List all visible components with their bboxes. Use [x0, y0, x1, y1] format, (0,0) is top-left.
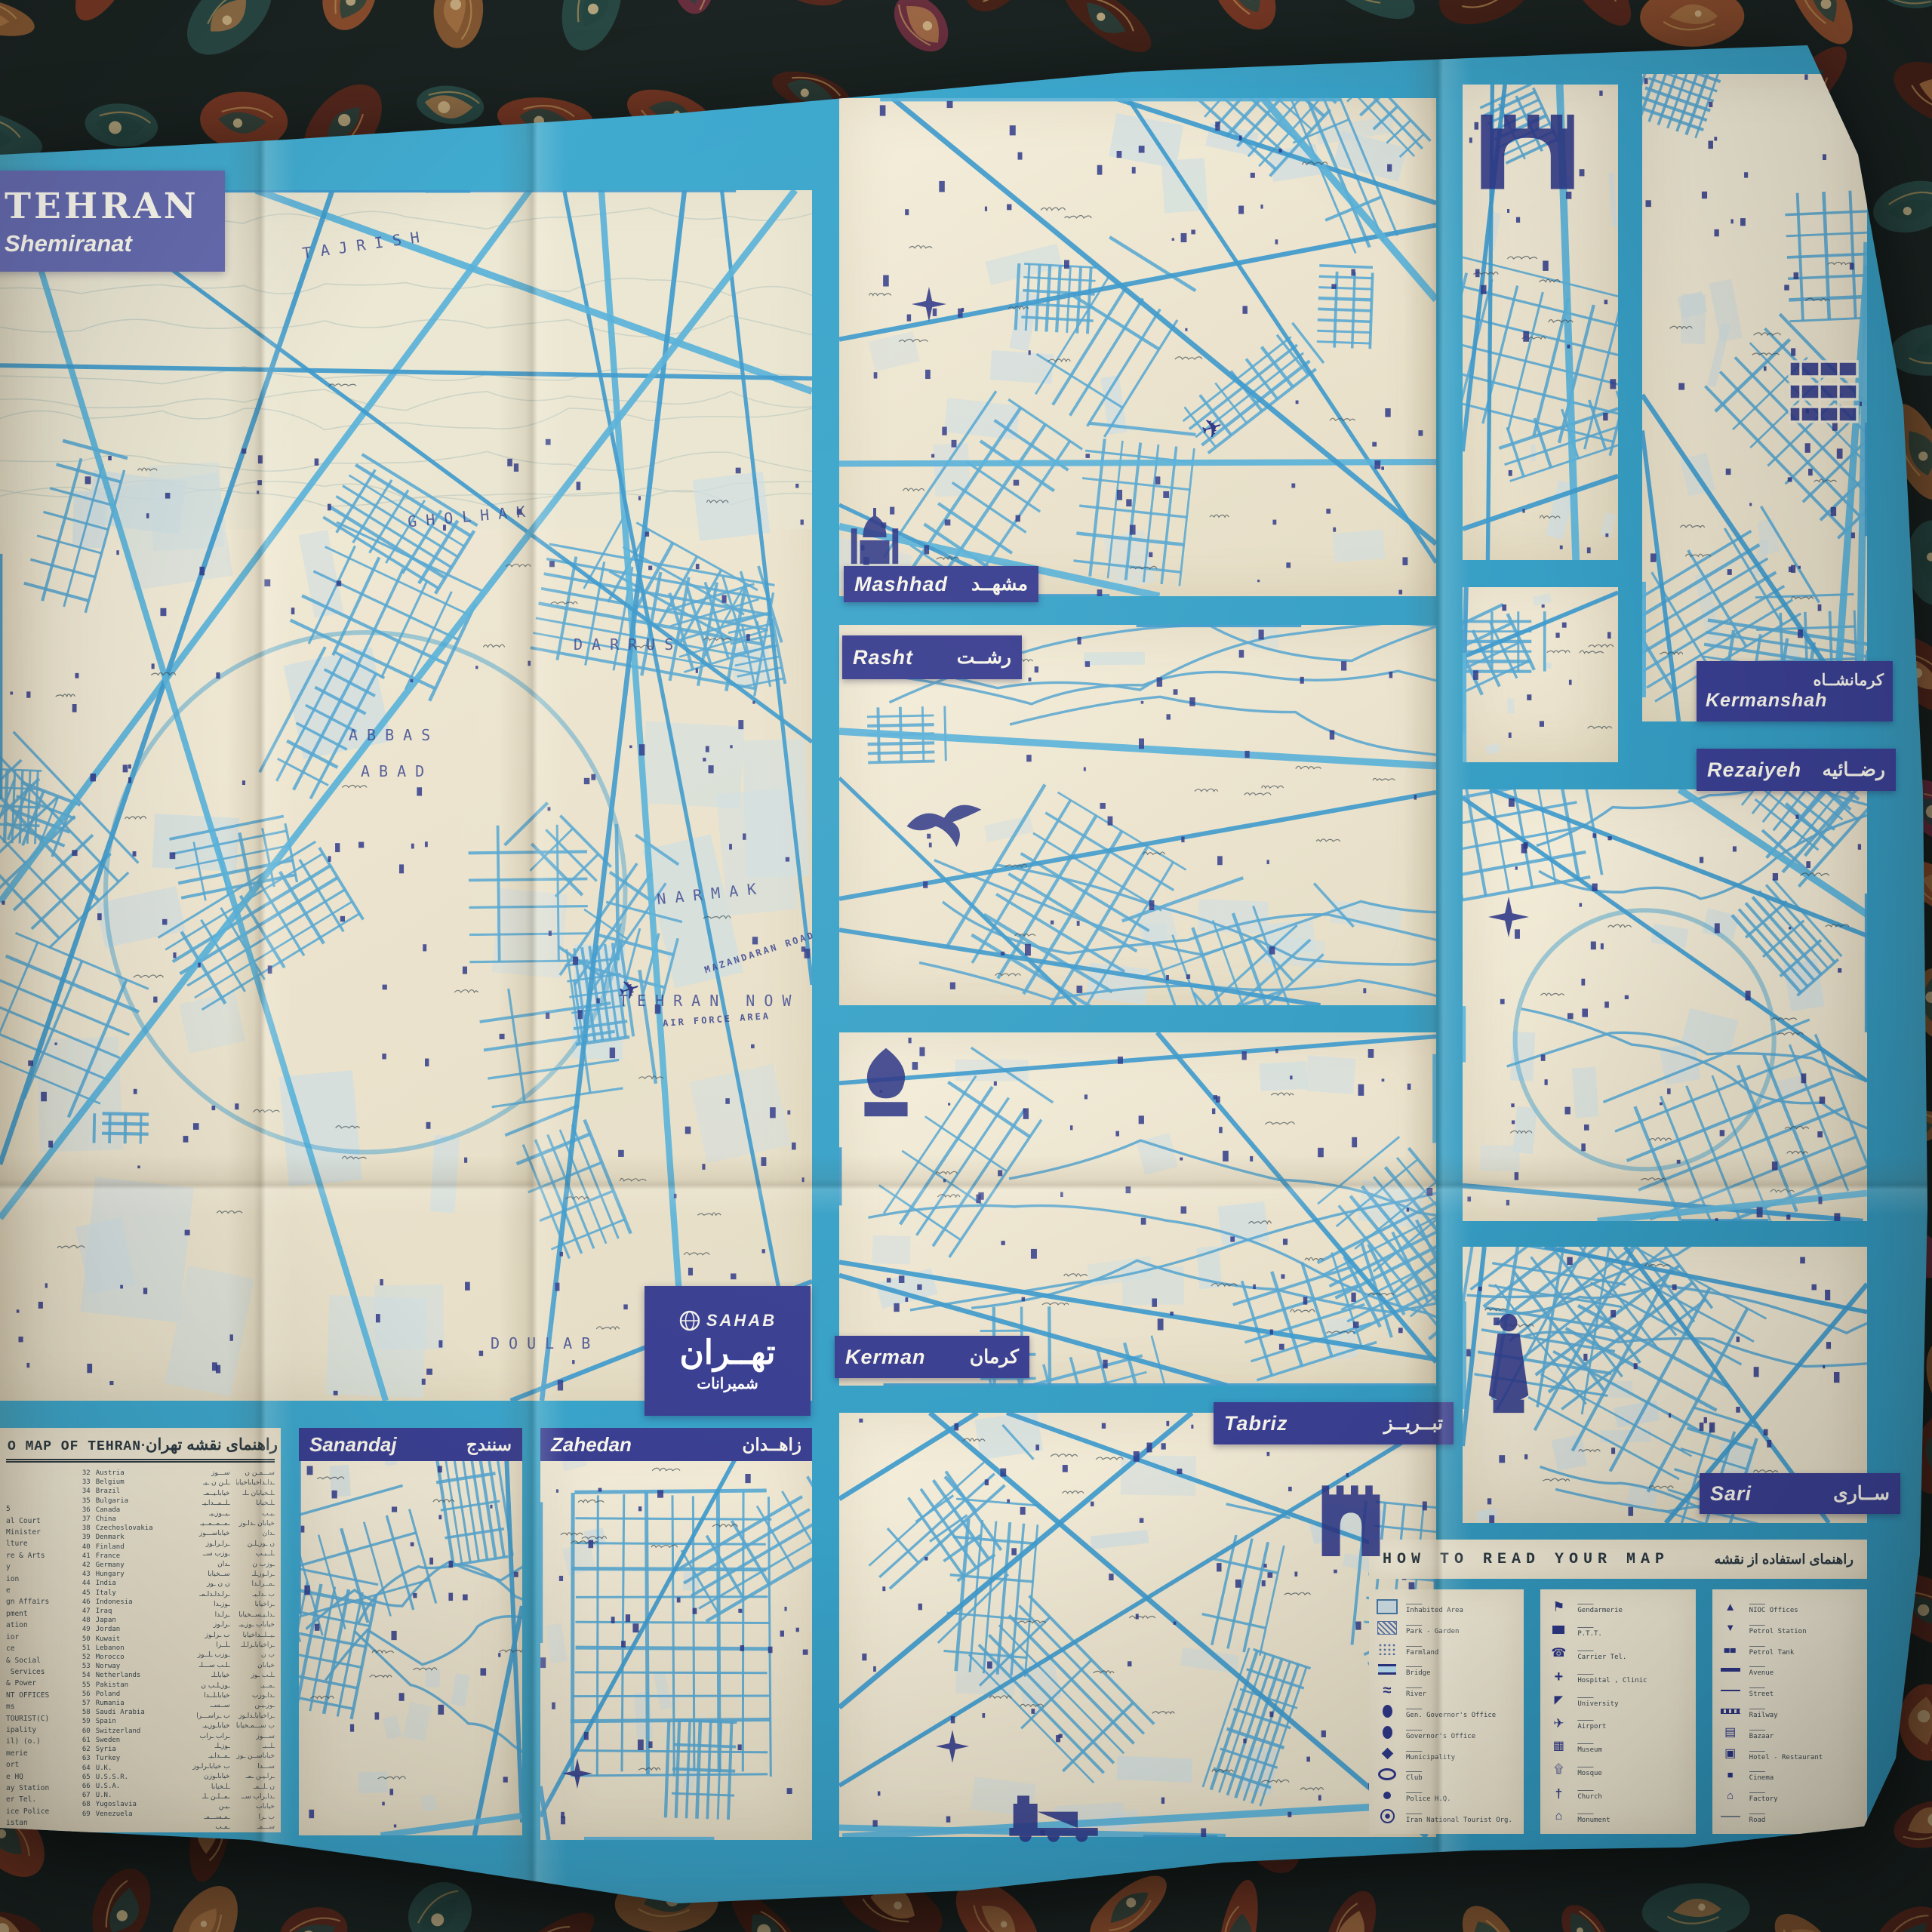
compass-rose-icon	[912, 287, 946, 321]
country-name: China	[96, 1515, 116, 1524]
panel-kerman-map	[839, 1032, 1436, 1386]
legend-persian-label: ــــــــ	[1406, 1704, 1496, 1711]
legend-symbol-icon	[1375, 1808, 1399, 1825]
legend-symbol-icon	[1546, 1669, 1571, 1685]
legend-symbol-icon	[1546, 1738, 1571, 1755]
country-name: Morocco	[96, 1653, 125, 1662]
legend-persian-label: ــــــــ	[1406, 1809, 1512, 1816]
inset-street-network	[1463, 587, 1618, 762]
legend-row: ــــــــ Church	[1546, 1783, 1689, 1803]
legend-row: ــــــــ Governor's Office	[1375, 1723, 1518, 1743]
legend-row: ــــــــ Inhabited Area	[1375, 1597, 1518, 1617]
legend-persian-label: ــــــــ	[1406, 1620, 1459, 1627]
legend-persian-label: ــــــــ	[1749, 1788, 1778, 1795]
index-country-row: 65 U.S.S.R.	[82, 1773, 185, 1782]
country-number: 49	[82, 1625, 91, 1634]
index-fragment: TOURIST(C)	[6, 1713, 76, 1724]
legend-header: HOW TO READ YOUR MAP راهنمای استفاده از …	[1369, 1540, 1867, 1579]
country-number: 41	[82, 1552, 91, 1561]
legend-row: ــــــــ Iran National Tourist Org.	[1375, 1807, 1518, 1826]
legend-symbol-icon	[1546, 1598, 1571, 1615]
legend-symbol-icon	[1718, 1724, 1743, 1741]
index-countries-column: 32 Austria 33 Belgium 34 Brazil 35 Bulga…	[82, 1469, 185, 1841]
city-label-rasht: Rasht رشــت	[842, 635, 1022, 679]
country-number: 37	[82, 1515, 91, 1524]
index-fragment: lture	[6, 1538, 76, 1549]
legend-column-2: ــــــــ Gendarmerie ــــــــ P.T.T. ـــ…	[1540, 1589, 1695, 1834]
legend-symbol-icon	[1718, 1682, 1743, 1699]
country-number: 59	[82, 1717, 91, 1726]
country-number: 56	[82, 1690, 91, 1699]
index-country-row: 58 Saudi Arabia	[82, 1708, 185, 1717]
panel-tabriz-map	[839, 1413, 1436, 1837]
index-country-row: 48 Japan	[82, 1616, 185, 1625]
legend-symbol-icon	[1375, 1724, 1399, 1741]
index-fragment: & Power	[6, 1678, 76, 1689]
panel-sanandaj-map: Sanandaj سنندج	[299, 1428, 522, 1835]
legend-symbol-icon	[1375, 1746, 1399, 1762]
country-name: Finland	[96, 1543, 125, 1552]
index-fragment: ce	[6, 1643, 76, 1654]
legend-english-label: Bazaar	[1749, 1733, 1774, 1740]
country-name: Brazil	[96, 1487, 121, 1496]
country-number: 66	[82, 1782, 91, 1791]
country-name: Syria	[96, 1745, 116, 1754]
legend-row: ــــــــ River	[1375, 1681, 1518, 1700]
country-number: 32	[82, 1469, 91, 1478]
legend-column-1: ــــــــ Inhabited Area ــــــــ Park - …	[1369, 1589, 1524, 1834]
legend-english-label: Airport	[1577, 1723, 1606, 1730]
index-fragment: 5	[6, 1503, 76, 1515]
legend-english-label: Club	[1406, 1774, 1423, 1782]
legend-persian-label: ــــــــ	[1406, 1725, 1475, 1732]
panel-rezaiyeh-map	[1463, 789, 1867, 1221]
country-number: 52	[82, 1653, 91, 1662]
country-number: 33	[82, 1478, 91, 1487]
country-name: Belgium	[96, 1478, 125, 1487]
legend-row: ــــــــ Mosque	[1546, 1760, 1689, 1780]
index-fragment: re & Arts	[6, 1550, 76, 1561]
country-name: Lebanon	[96, 1644, 125, 1653]
globe-icon	[678, 1309, 701, 1332]
legend-english-label: Cinema	[1749, 1774, 1774, 1782]
locomotive-vignette-icon	[1005, 1787, 1102, 1844]
country-number: 57	[82, 1699, 91, 1708]
legend-header-fa: راهنمای استفاده از نقشه	[1714, 1552, 1854, 1567]
index-fragment: ation	[6, 1620, 76, 1631]
legend-persian-label: ــــــــ	[1577, 1809, 1610, 1816]
map-title: TEHRAN	[5, 186, 225, 227]
tabriz-street-network	[839, 1413, 1436, 1837]
country-name: France	[96, 1552, 121, 1561]
index-country-row: 50 Kuwait	[82, 1635, 185, 1644]
legend-row: ــــــــ Police H.Q.	[1375, 1786, 1518, 1805]
legend-persian-label: ــــــــ	[1749, 1767, 1774, 1774]
index-fragment: e	[6, 1585, 76, 1596]
city-label-sanandaj-fa: سنندج	[466, 1435, 512, 1455]
country-name: Germany	[96, 1561, 125, 1570]
country-number: 38	[82, 1524, 91, 1533]
country-name: U.N.	[96, 1791, 112, 1800]
legend-row: ــــــــ Hotel - Restaurant	[1718, 1744, 1861, 1764]
index-fragment: il) (o.)	[6, 1736, 76, 1747]
legend-persian-label: ــــــــ	[1577, 1599, 1623, 1606]
legend-english-label: Park - Garden	[1406, 1628, 1459, 1635]
index-fragment: ort	[6, 1759, 76, 1770]
legend-persian-label: ــــــــ	[1749, 1725, 1774, 1732]
country-number: 48	[82, 1616, 91, 1625]
index-fragment: ior	[6, 1632, 76, 1643]
legend-symbol-icon	[1375, 1766, 1399, 1783]
legend-row: ــــــــ NIOC Offices	[1718, 1597, 1861, 1617]
index-fragment: istan	[6, 1817, 76, 1829]
index-country-row: 49 Jordan	[82, 1625, 185, 1634]
legend-symbol-icon	[1718, 1808, 1743, 1825]
legend-persian-label: ــــــــ	[1577, 1786, 1602, 1792]
shrine-vignette-icon	[845, 504, 904, 571]
legend-row: ــــــــ P.T.T.	[1546, 1620, 1689, 1640]
legend-persian-label: ــــــــ	[1406, 1641, 1438, 1648]
legend-english-label: Police H.Q.	[1406, 1795, 1451, 1803]
legend-row: ــــــــ Cinema	[1718, 1764, 1861, 1784]
legend-persian-label: ــــــــ	[1577, 1762, 1602, 1769]
rezaiyeh-street-network	[1463, 789, 1867, 1221]
index-country-row: 32 Austria	[82, 1469, 185, 1478]
index-fragment: y	[6, 1561, 76, 1573]
legend-persian-label: ــــــــ	[1406, 1767, 1423, 1774]
city-label-zahedan: Zahedan زاهــدان	[540, 1428, 812, 1461]
index-country-row: 55 Pakistan	[82, 1681, 185, 1690]
publisher-brand-text: SAHAB	[706, 1311, 777, 1331]
legend-persian-label: ــــــــ	[1749, 1683, 1774, 1690]
legend-symbol-icon	[1375, 1661, 1399, 1678]
legend-english-label: Bridge	[1406, 1669, 1431, 1677]
legend-persian-label: ــــــــ	[1406, 1788, 1451, 1795]
city-label-kermanshah-fa: کرمانشــاه	[1706, 672, 1884, 690]
legend-persian-label: ــــــــ	[1577, 1715, 1606, 1722]
legend-symbol-icon	[1718, 1787, 1743, 1804]
map-paper: TAJRISHGHOLHAKDARRUSABBASABADNARMAKMAZAN…	[0, 0, 1932, 1932]
city-label-rasht-en: Rasht	[853, 646, 913, 669]
legend-english-label: Factory	[1749, 1795, 1778, 1803]
legend-english-label: Inhabited Area	[1406, 1607, 1463, 1614]
index-country-row: 40 Finland	[82, 1543, 185, 1552]
country-name: U.K.	[96, 1764, 112, 1773]
legend-row: ــــــــ Farmland	[1375, 1639, 1518, 1659]
kerman-street-network	[839, 1032, 1436, 1386]
panel-map-legend: HOW TO READ YOUR MAP راهنمای استفاده از …	[1369, 1540, 1867, 1834]
city-label-tabriz-fa: تبــریــز	[1384, 1412, 1443, 1435]
city-gate-vignette-icon	[1472, 100, 1583, 195]
legend-row: ــــــــ Bridge	[1375, 1660, 1518, 1679]
sanandaj-street-network	[299, 1428, 522, 1835]
legend-english-label: Carrier Tel.	[1577, 1654, 1626, 1661]
country-number: 42	[82, 1561, 91, 1570]
country-number: 43	[82, 1570, 91, 1579]
legend-english-label: Museum	[1577, 1746, 1602, 1754]
country-name: Pakistan	[96, 1681, 128, 1690]
city-label-tabriz-en: Tabriz	[1224, 1412, 1288, 1435]
map-subtitle: Shemiranat	[5, 230, 225, 257]
legend-english-label: Hotel - Restaurant	[1749, 1754, 1823, 1761]
legend-symbol-icon	[1375, 1641, 1399, 1657]
index-country-row: 38 Czechoslovakia	[82, 1524, 185, 1533]
legend-row: ــــــــ Avenue	[1718, 1660, 1861, 1679]
index-columns: 5al CourtMinisterlturere & Artsyionegn A…	[6, 1469, 275, 1841]
index-fragment: & Social	[6, 1655, 76, 1666]
index-fragment: ina	[6, 1829, 76, 1841]
legend-symbol-icon	[1546, 1645, 1571, 1662]
publisher-title-fa: تهــران	[679, 1335, 775, 1371]
legend-english-label: P.T.T.	[1577, 1630, 1602, 1638]
legend-english-label: Monument	[1577, 1817, 1610, 1824]
index-country-row: 43 Hungary	[82, 1570, 185, 1579]
country-number: 39	[82, 1533, 91, 1542]
city-label-sanandaj-en: Sanandaj	[309, 1433, 397, 1457]
legend-english-label: Farmland	[1406, 1649, 1438, 1657]
index-header-en: O MAP OF TEHRAN	[8, 1439, 141, 1454]
index-country-row: 41 France	[82, 1552, 185, 1561]
legend-row: ــــــــ Club	[1375, 1764, 1518, 1784]
country-name: Spain	[96, 1717, 116, 1726]
country-name: Turkey	[96, 1754, 121, 1763]
country-number: 46	[82, 1598, 91, 1607]
index-fragment: NT OFFICES	[6, 1690, 76, 1701]
legend-row: ــــــــ Gendarmerie	[1546, 1597, 1689, 1617]
city-label-sari: Sari ســاری	[1700, 1473, 1900, 1514]
country-name: Rumania	[96, 1699, 125, 1708]
country-name: Sweden	[96, 1736, 121, 1745]
legend-columns: ــــــــ Inhabited Area ــــــــ Park - …	[1369, 1589, 1867, 1834]
legend-persian-label: ــــــــ	[1749, 1599, 1798, 1606]
index-country-row: 44 India	[82, 1579, 185, 1588]
index-fragment: Minister	[6, 1527, 76, 1538]
city-label-sari-en: Sari	[1710, 1482, 1752, 1506]
city-label-zahedan-en: Zahedan	[551, 1433, 632, 1457]
index-fragment: pment	[6, 1608, 76, 1620]
city-label-tabriz: Tabriz تبــریــز	[1214, 1402, 1454, 1444]
legend-english-label: Governor's Office	[1406, 1733, 1475, 1740]
legend-symbol-icon	[1718, 1661, 1743, 1678]
index-fragment: merie	[6, 1748, 76, 1759]
legend-column-3: ــــــــ NIOC Offices ــــــــ Petrol St…	[1712, 1589, 1867, 1834]
legend-symbol-icon	[1718, 1641, 1743, 1657]
dome-vignette-icon	[850, 1044, 922, 1120]
legend-symbol-icon	[1375, 1703, 1399, 1720]
legend-row: ــــــــ Petrol Station	[1718, 1618, 1861, 1638]
index-fragment: ion	[6, 1574, 76, 1585]
index-country-row: 60 Switzerland	[82, 1727, 185, 1736]
index-country-row: 56 Poland	[82, 1690, 185, 1699]
legend-persian-label: ــــــــ	[1406, 1746, 1455, 1753]
publisher-brand: SAHAB	[678, 1309, 777, 1332]
publisher-box: SAHAB تهــران شمیرانات	[645, 1286, 811, 1416]
country-number: 54	[82, 1671, 91, 1680]
legend-row: ــــــــ Bazaar	[1718, 1723, 1861, 1743]
stone-relief-vignette-icon	[1786, 358, 1861, 426]
index-country-row: 47 Iraq	[82, 1607, 185, 1616]
country-name: U.S.A.	[96, 1782, 121, 1791]
panel-mashhad-map	[839, 98, 1436, 596]
country-number: 61	[82, 1736, 91, 1745]
country-name: Netherlands	[96, 1671, 141, 1680]
legend-persian-label: ــــــــ	[1406, 1599, 1463, 1606]
index-country-row: 52 Morocco	[82, 1653, 185, 1662]
country-number: 62	[82, 1745, 91, 1754]
legend-persian-label: ــــــــ	[1406, 1662, 1431, 1669]
bird-vignette-icon	[903, 791, 986, 857]
map-title-box: TEHRAN Shemiranat	[0, 171, 225, 272]
legend-english-label: Iran National Tourist Org.	[1406, 1817, 1512, 1824]
mashhad-street-network	[839, 98, 1436, 596]
city-label-mashhad-en: Mashhad	[854, 573, 948, 596]
index-country-row: 53 Norway	[82, 1662, 185, 1671]
legend-persian-label: ــــــــ	[1577, 1669, 1647, 1676]
legend-row: ــــــــ Road	[1718, 1807, 1861, 1826]
legend-symbol-icon	[1546, 1808, 1571, 1825]
panel-map-index: O MAP OF TEHRAN · راهنمای نقشه تهران 5al…	[0, 1428, 281, 1832]
index-header-fa: راهنمای نقشه تهران	[146, 1435, 278, 1454]
panel-small-inset	[1463, 587, 1618, 762]
country-name: Saudi Arabia	[96, 1708, 145, 1717]
legend-english-label: Mosque	[1577, 1770, 1602, 1777]
legend-row: ــــــــ Park - Garden	[1375, 1618, 1518, 1638]
legend-row: ــــــــ Monument	[1546, 1807, 1689, 1826]
country-name: Canada	[96, 1506, 121, 1515]
legend-english-label: Municipality	[1406, 1754, 1455, 1761]
legend-symbol-icon	[1546, 1715, 1571, 1731]
city-label-sanandaj: Sanandaj سنندج	[299, 1428, 522, 1461]
country-number: 67	[82, 1791, 91, 1800]
legend-symbol-icon	[1546, 1761, 1571, 1778]
country-name: Bulgaria	[96, 1497, 128, 1506]
country-name: Switzerland	[96, 1727, 141, 1736]
legend-english-label: Railway	[1749, 1712, 1778, 1719]
country-number: 60	[82, 1727, 91, 1736]
map-paper-wrap: TAJRISHGHOLHAKDARRUSABBASABADNARMAKMAZAN…	[0, 0, 1932, 1932]
country-number: 68	[82, 1800, 91, 1809]
index-country-row: 46 Indonesia	[82, 1598, 185, 1607]
legend-row: ــــــــ Carrier Tel.	[1546, 1644, 1689, 1663]
country-name: Jordan	[96, 1625, 121, 1634]
index-country-row: 35 Bulgaria	[82, 1497, 185, 1506]
country-number: 64	[82, 1764, 91, 1773]
city-label-rezaiyeh: Rezaiyeh رضــائیه	[1697, 749, 1896, 791]
publisher-subtitle-fa: شمیرانات	[697, 1374, 758, 1393]
country-name: Poland	[96, 1690, 121, 1699]
country-number: 44	[82, 1579, 91, 1588]
legend-symbol-icon	[1375, 1620, 1399, 1636]
legend-row: ــــــــ Gen. Governor's Office	[1375, 1702, 1518, 1721]
country-name: Kuwait	[96, 1635, 121, 1644]
index-country-row: 33 Belgium	[82, 1478, 185, 1487]
legend-row: ــــــــ Street	[1718, 1681, 1861, 1700]
legend-row: ــــــــ Museum	[1546, 1737, 1689, 1756]
index-country-row: 64 U.K.	[82, 1764, 185, 1773]
legend-row: ــــــــ Petrol Tank	[1718, 1639, 1861, 1659]
index-country-row: 62 Syria	[82, 1745, 185, 1754]
legend-persian-label: ــــــــ	[1749, 1662, 1774, 1669]
index-country-row: 37 China	[82, 1515, 185, 1524]
country-number: 34	[82, 1487, 91, 1496]
index-fragment: er Tel.	[6, 1794, 76, 1805]
country-name: Venezuela	[96, 1810, 133, 1819]
country-name: Czechoslovakia	[96, 1524, 153, 1533]
country-name: Iraq	[96, 1607, 112, 1616]
legend-persian-label: ــــــــ	[1749, 1809, 1766, 1816]
country-name: Italy	[96, 1589, 116, 1598]
legend-symbol-icon	[1718, 1703, 1743, 1720]
legend-english-label: Road	[1749, 1817, 1766, 1824]
city-label-rezaiyeh-en: Rezaiyeh	[1707, 758, 1801, 782]
legend-symbol-icon	[1718, 1746, 1743, 1762]
country-number: 65	[82, 1773, 91, 1782]
compass-rose-icon	[936, 1730, 969, 1763]
country-name: Norway	[96, 1662, 121, 1671]
legend-english-label: Avenue	[1749, 1669, 1774, 1677]
index-country-row: 68 Yugoslavia	[82, 1800, 185, 1809]
index-fragment: Services	[6, 1666, 76, 1678]
index-persian-column-2: ســـمـن ن ـداـداخیاباخیابا ـلـخیابان ـلـ…	[236, 1469, 275, 1841]
index-country-row: 34 Brazil	[82, 1487, 185, 1496]
legend-symbol-icon	[1375, 1598, 1399, 1615]
legend-persian-label: ــــــــ	[1577, 1646, 1626, 1653]
index-fragment: gn Affairs	[6, 1596, 76, 1607]
index-fragments-column: 5al CourtMinisterlturere & Artsyionegn A…	[6, 1469, 76, 1841]
country-number: 45	[82, 1589, 91, 1598]
index-country-row: 66 U.S.A.	[82, 1782, 185, 1791]
index-country-row: 69 Venezuela	[82, 1810, 185, 1819]
legend-row: ــــــــ Railway	[1718, 1702, 1861, 1721]
city-label-kermanshah: کرمانشــاه Kermanshah	[1697, 661, 1893, 721]
country-number: 51	[82, 1644, 91, 1653]
compass-rose-icon	[1488, 897, 1529, 937]
country-number: 55	[82, 1681, 91, 1690]
country-number: 47	[82, 1607, 91, 1616]
country-name: Japan	[96, 1616, 116, 1625]
index-country-row: 57 Rumania	[82, 1699, 185, 1708]
index-country-row: 59 Spain	[82, 1717, 185, 1726]
legend-english-label: Church	[1577, 1793, 1602, 1801]
legend-persian-label: ــــــــ	[1577, 1623, 1602, 1629]
legend-symbol-icon	[1546, 1692, 1571, 1709]
index-country-row: 61 Sweden	[82, 1736, 185, 1745]
country-number: 50	[82, 1635, 91, 1644]
index-fragment: e HQ	[6, 1771, 76, 1783]
index-country-row: 42 Germany	[82, 1561, 185, 1570]
costumed-figure-vignette-icon	[1482, 1306, 1535, 1423]
city-label-mashhad-fa: مشهــد	[971, 573, 1028, 595]
legend-persian-label: ــــــــ	[1577, 1693, 1618, 1700]
index-country-row: 36 Canada	[82, 1506, 185, 1515]
city-label-zahedan-fa: زاهــدان	[743, 1435, 801, 1455]
legend-row: ــــــــ Hospital , Clinic	[1546, 1667, 1689, 1687]
country-name: Denmark	[96, 1533, 125, 1542]
city-label-kerman: Kerman کرمان	[835, 1336, 1029, 1378]
legend-symbol-icon	[1718, 1766, 1743, 1783]
photograph-of-folded-tehran-map: TAJRISHGHOLHAKDARRUSABBASABADNARMAKMAZAN…	[0, 0, 1932, 1932]
legend-row: ــــــــ Airport	[1546, 1713, 1689, 1733]
legend-symbol-icon	[1375, 1682, 1399, 1699]
legend-row: ــــــــ Municipality	[1375, 1744, 1518, 1764]
legend-persian-label: ــــــــ	[1749, 1641, 1795, 1648]
arch-ruin-vignette-icon	[1315, 1479, 1387, 1561]
index-fragment: ay Station	[6, 1783, 76, 1794]
index-country-row: 67 U.N.	[82, 1791, 185, 1800]
index-fragment: ms	[6, 1701, 76, 1712]
index-country-row: 51 Lebanon	[82, 1644, 185, 1653]
legend-english-label: Street	[1749, 1690, 1774, 1698]
